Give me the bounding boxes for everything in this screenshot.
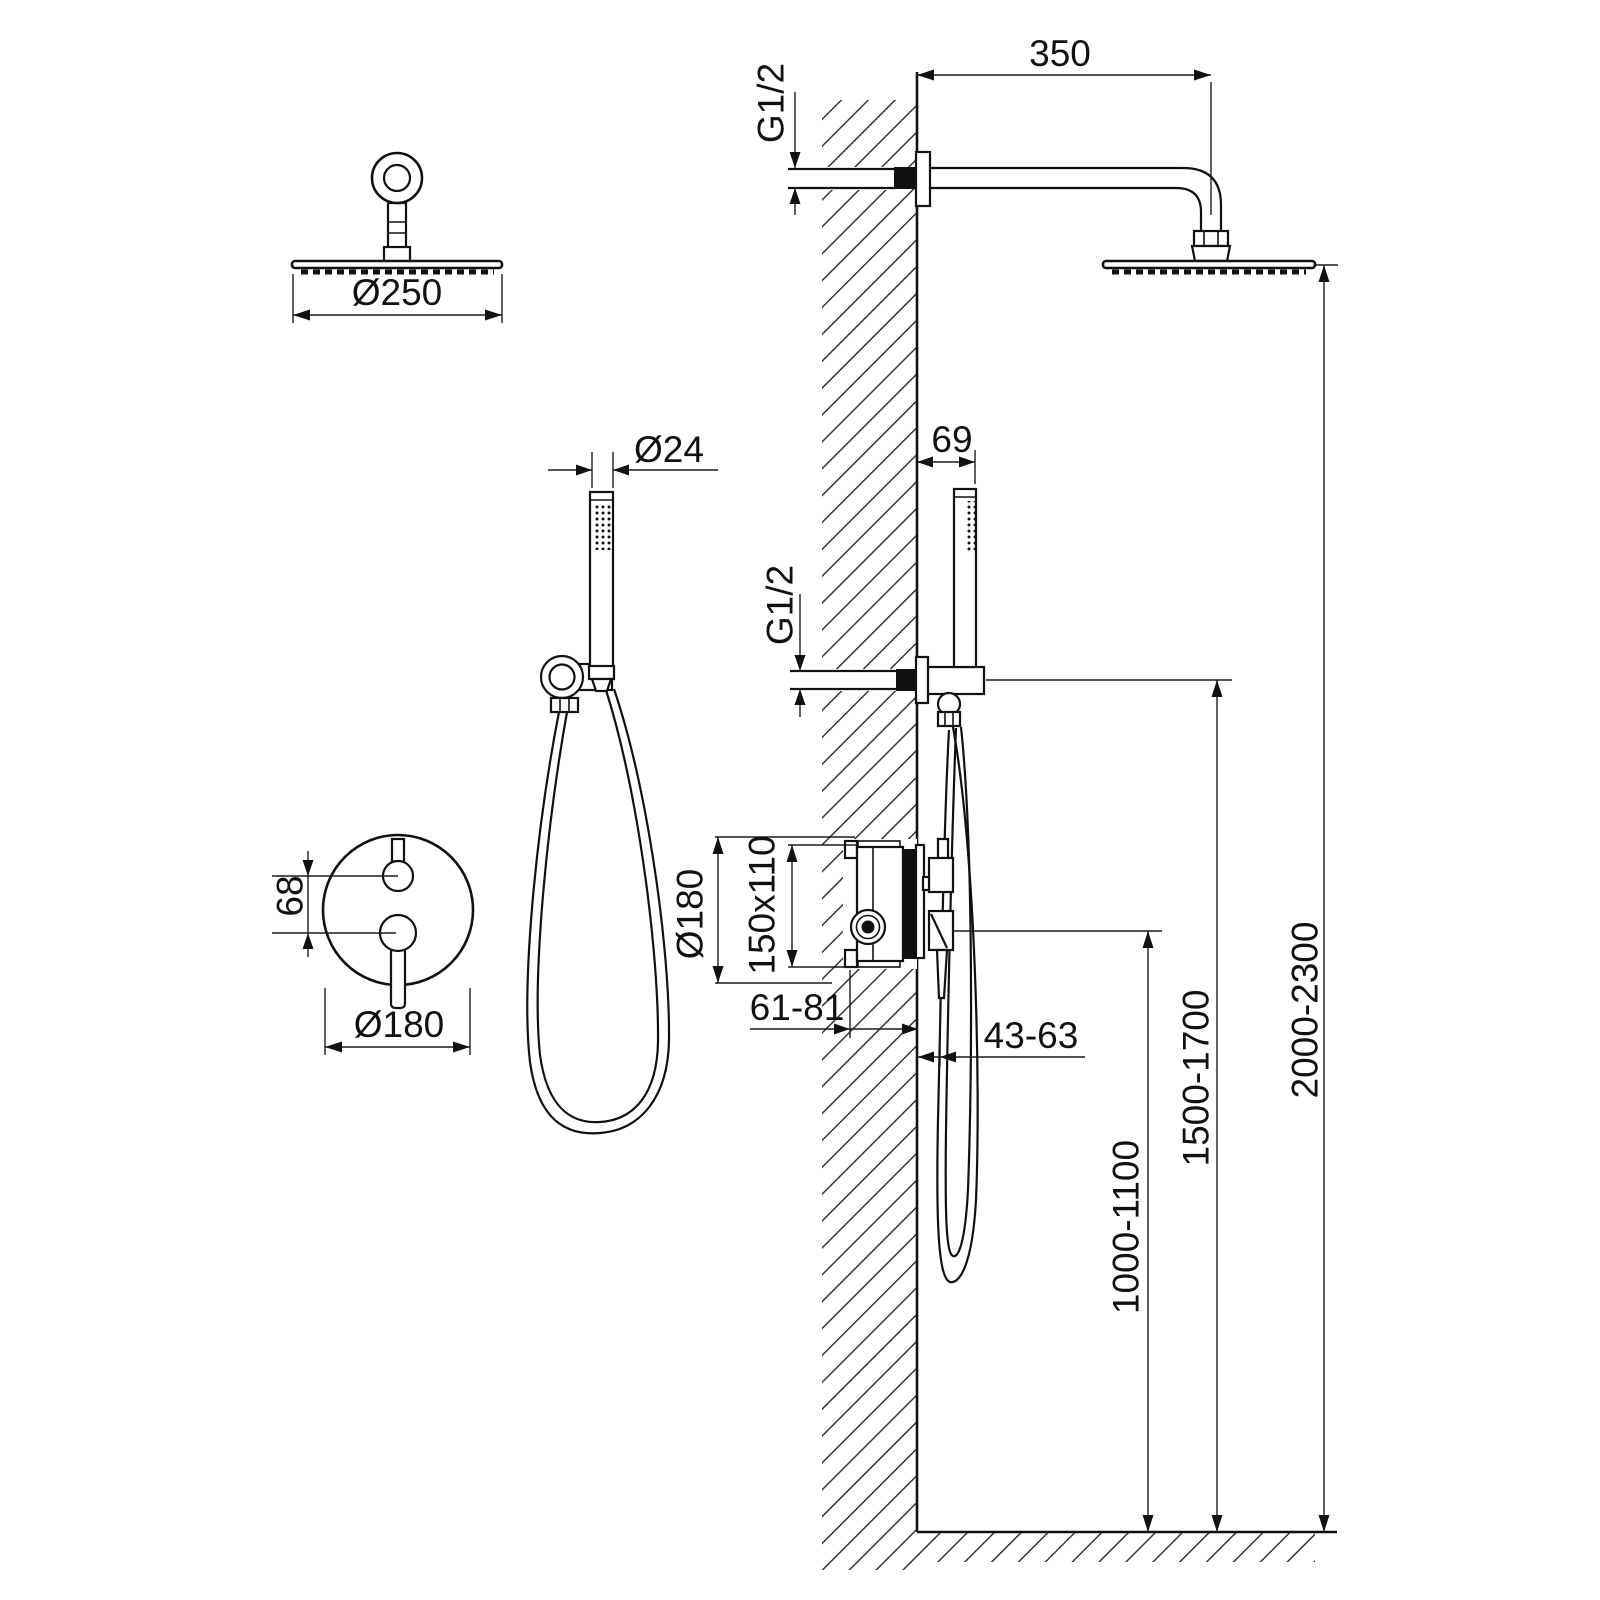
- diverter-stem-side: [938, 839, 948, 858]
- dim-label-valve-depth: 61-81: [750, 987, 845, 1028]
- arm-wall-flange: [916, 152, 930, 206]
- plaster-depth-strip: [902, 849, 917, 959]
- head-shaft: [388, 203, 406, 248]
- front-view-mixer: 68 Ø180: [270, 835, 474, 1055]
- mounting-tab-top: [845, 841, 857, 858]
- dim-label-trim-depth: 43-63: [984, 1015, 1079, 1056]
- floor-hatch: [917, 1532, 1315, 1562]
- wand-spray-side: [966, 501, 976, 551]
- height-dimensions: 1000-1100 1500-1700 2000-2300: [952, 265, 1338, 1532]
- dim-label-mid-thread: G1/2: [760, 565, 801, 645]
- holder-hex-nut: [551, 698, 578, 712]
- diverter-knob-side: [929, 858, 953, 892]
- mixer-lever: [391, 948, 405, 1008]
- wall-section: [822, 72, 1337, 1570]
- holder-bracket-side: [927, 667, 984, 694]
- installation-diagram: Ø250 Ø24: [0, 0, 1600, 1600]
- dim-label-top-thread: G1/2: [751, 63, 792, 143]
- diverter-stem: [392, 839, 404, 863]
- dim-label-holder-offset: 69: [931, 419, 972, 460]
- dim-label-valve-height: 1000-1100: [1106, 1140, 1147, 1314]
- arrow-left: [293, 310, 310, 321]
- wand-nut: [589, 666, 614, 679]
- head-ball-joint: [1192, 246, 1230, 261]
- hose-side-inner: [946, 727, 971, 1256]
- dim-label-mixer-plate-diameter: Ø180: [354, 1004, 445, 1045]
- front-view-shower-head: Ø250: [292, 153, 502, 323]
- dim-label-holder-height: 1500-1700: [1176, 990, 1217, 1167]
- wall-fitting-top: [894, 167, 917, 189]
- dim-label-arm-length: 350: [1029, 33, 1091, 74]
- hose-loop-outer: [527, 689, 669, 1133]
- dim-label-valve-trim-diameter: Ø180: [670, 869, 711, 960]
- dim-label-head-diameter: Ø250: [352, 272, 443, 313]
- shower-head-plate: [292, 261, 502, 268]
- wall-hatch: [822, 100, 917, 1570]
- dim-label-valve-box-size: 150x110: [742, 835, 783, 974]
- head-nut: [1194, 231, 1228, 246]
- hose-nut: [938, 712, 960, 726]
- wall-fitting-mid: [896, 669, 917, 691]
- lever-bar-side: [937, 950, 947, 998]
- dim-label-handle-spacing: 68: [270, 875, 311, 916]
- wand-spray-face: [593, 503, 611, 550]
- dim-label-head-height: 2000-2300: [1285, 922, 1326, 1099]
- holder-flange: [916, 657, 928, 703]
- escutcheon-edge: [916, 845, 924, 958]
- dim-label-handshower-diameter: Ø24: [634, 429, 704, 470]
- mounting-tab-bottom: [845, 950, 857, 967]
- hose-loop-inner: [538, 690, 658, 1122]
- front-view-hand-shower: Ø24: [527, 429, 718, 1133]
- arrow-right: [485, 310, 502, 321]
- shower-head-plate-side: [1103, 261, 1315, 268]
